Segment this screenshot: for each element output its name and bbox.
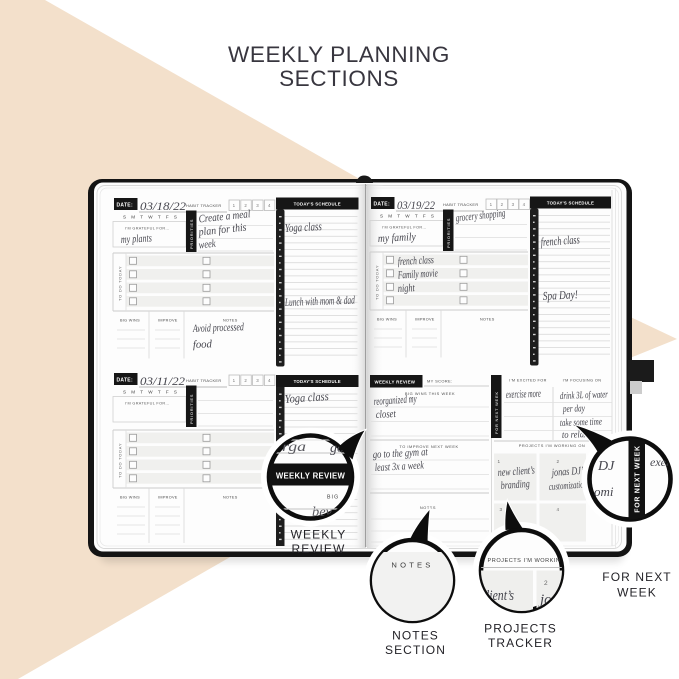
svg-text:I'M GRATEFUL FOR...: I'M GRATEFUL FOR...	[125, 402, 170, 406]
svg-text:IMPROVE: IMPROVE	[158, 496, 178, 500]
svg-text:WEEKLY PLANNING: WEEKLY PLANNING	[228, 42, 450, 67]
svg-text:TODAY'S SCHEDULE: TODAY'S SCHEDULE	[294, 379, 341, 384]
svg-text:jonas DJ’s: jonas DJ’s	[550, 465, 586, 479]
svg-text:03/11/22: 03/11/22	[140, 376, 185, 388]
svg-text:FOR NEXT WEEK: FOR NEXT WEEK	[494, 391, 499, 434]
svg-text:BIG: BIG	[327, 495, 339, 501]
svg-text:my plants: my plants	[121, 232, 153, 246]
svg-text:PROJECTS: PROJECTS	[484, 622, 557, 636]
svg-text:NOTES: NOTES	[392, 629, 439, 643]
svg-text:REVIEW: REVIEW	[292, 542, 346, 556]
svg-text:omi: omi	[594, 484, 614, 499]
svg-text:WEEKLY REVIEW: WEEKLY REVIEW	[375, 380, 416, 385]
svg-text:I'M GRATEFUL FOR...: I'M GRATEFUL FOR...	[382, 226, 427, 230]
svg-text:TO DO TODAY: TO DO TODAY	[118, 266, 123, 301]
svg-text:Yoga class: Yoga class	[284, 219, 322, 235]
svg-text:HABIT TRACKER: HABIT TRACKER	[186, 378, 222, 383]
svg-text:2: 2	[557, 459, 560, 464]
svg-text:DATE:: DATE:	[117, 203, 133, 209]
svg-text:BIG WINS: BIG WINS	[120, 496, 140, 500]
svg-text:week: week	[198, 238, 217, 252]
svg-text:WEEK: WEEK	[617, 586, 657, 600]
svg-text:PROJECTS I'M WORKING ON: PROJECTS I'M WORKING ON	[519, 443, 586, 448]
svg-text:WEEKLY: WEEKLY	[291, 528, 347, 542]
svg-text:SECTIONS: SECTIONS	[279, 66, 399, 91]
svg-text:NOTES: NOTES	[480, 318, 495, 322]
svg-text:NOTES: NOTES	[223, 496, 238, 500]
svg-text:exercise more: exercise more	[506, 388, 541, 401]
svg-text:2: 2	[544, 580, 548, 587]
svg-text:SMTWTFS: SMTWTFS	[123, 390, 182, 395]
svg-text:TODAY'S SCHEDULE: TODAY'S SCHEDULE	[294, 202, 341, 207]
svg-text:1: 1	[498, 459, 501, 464]
svg-text:SECTION: SECTION	[385, 643, 446, 657]
svg-text:BIG WINS: BIG WINS	[377, 318, 397, 322]
svg-text:my family: my family	[378, 231, 417, 245]
svg-text:FOR NEXT WEEK: FOR NEXT WEEK	[635, 445, 642, 512]
svg-text:MY SCORE:: MY SCORE:	[427, 379, 453, 384]
svg-text:PROJECTS I’M WORKIN: PROJECTS I’M WORKIN	[488, 558, 561, 564]
svg-text:branding: branding	[500, 478, 530, 492]
svg-text:SMTWTFS: SMTWTFS	[380, 214, 439, 219]
svg-text:TRACKER: TRACKER	[488, 636, 553, 650]
svg-text:DATE:: DATE:	[374, 202, 390, 208]
svg-text:per day: per day	[562, 403, 585, 415]
svg-text:DATE:: DATE:	[117, 378, 133, 384]
svg-text:TO DO TODAY: TO DO TODAY	[118, 443, 123, 478]
svg-text:BIG WINS: BIG WINS	[120, 319, 140, 323]
svg-text:DJ: DJ	[597, 459, 615, 474]
svg-text:I'M FOCUSING ON: I'M FOCUSING ON	[563, 379, 602, 383]
svg-text:03/18/22: 03/18/22	[140, 201, 186, 213]
svg-text:I'M EXCITED FOR: I'M EXCITED FOR	[509, 379, 547, 383]
svg-text:french class: french class	[540, 232, 580, 249]
svg-text:Avoid processed: Avoid processed	[192, 321, 244, 335]
svg-text:IMPROVE: IMPROVE	[158, 319, 178, 323]
svg-text:I'M GRATEFUL FOR...: I'M GRATEFUL FOR...	[125, 227, 170, 231]
svg-text:HABIT TRACKER: HABIT TRACKER	[443, 202, 479, 207]
svg-text:WEEKLY REVIEW: WEEKLY REVIEW	[276, 472, 346, 481]
svg-text:Family movie: Family movie	[397, 267, 438, 281]
svg-text:french class: french class	[398, 254, 435, 268]
svg-text:03/19/22: 03/19/22	[397, 200, 435, 212]
svg-text:PRIORITIES: PRIORITIES	[189, 219, 194, 249]
svg-text:TODAY'S SCHEDULE: TODAY'S SCHEDULE	[547, 201, 594, 206]
svg-text:FOR NEXT: FOR NEXT	[602, 570, 671, 584]
svg-text:food: food	[193, 338, 213, 351]
svg-text:NOTES: NOTES	[391, 561, 433, 570]
svg-text:HABIT TRACKER: HABIT TRACKER	[186, 203, 222, 208]
svg-text:closet: closet	[376, 408, 397, 421]
svg-text:PRIORITIES: PRIORITIES	[446, 218, 451, 248]
svg-text:Lunch with mom & dad: Lunch with mom & dad	[284, 295, 355, 309]
svg-text:TO DO TODAY: TO DO TODAY	[375, 265, 380, 300]
svg-text:NOTES: NOTES	[420, 505, 436, 510]
svg-text:3: 3	[500, 507, 503, 512]
svg-text:drink 3L of water: drink 3L of water	[560, 389, 608, 402]
svg-text:Spa Day!: Spa Day!	[542, 287, 578, 303]
svg-text:SMTWTFS: SMTWTFS	[123, 215, 182, 220]
svg-text:4: 4	[557, 507, 560, 512]
svg-text:night: night	[398, 282, 416, 295]
svg-text:PRIORITIES: PRIORITIES	[189, 394, 194, 424]
svg-text:IMPROVE: IMPROVE	[415, 318, 435, 322]
